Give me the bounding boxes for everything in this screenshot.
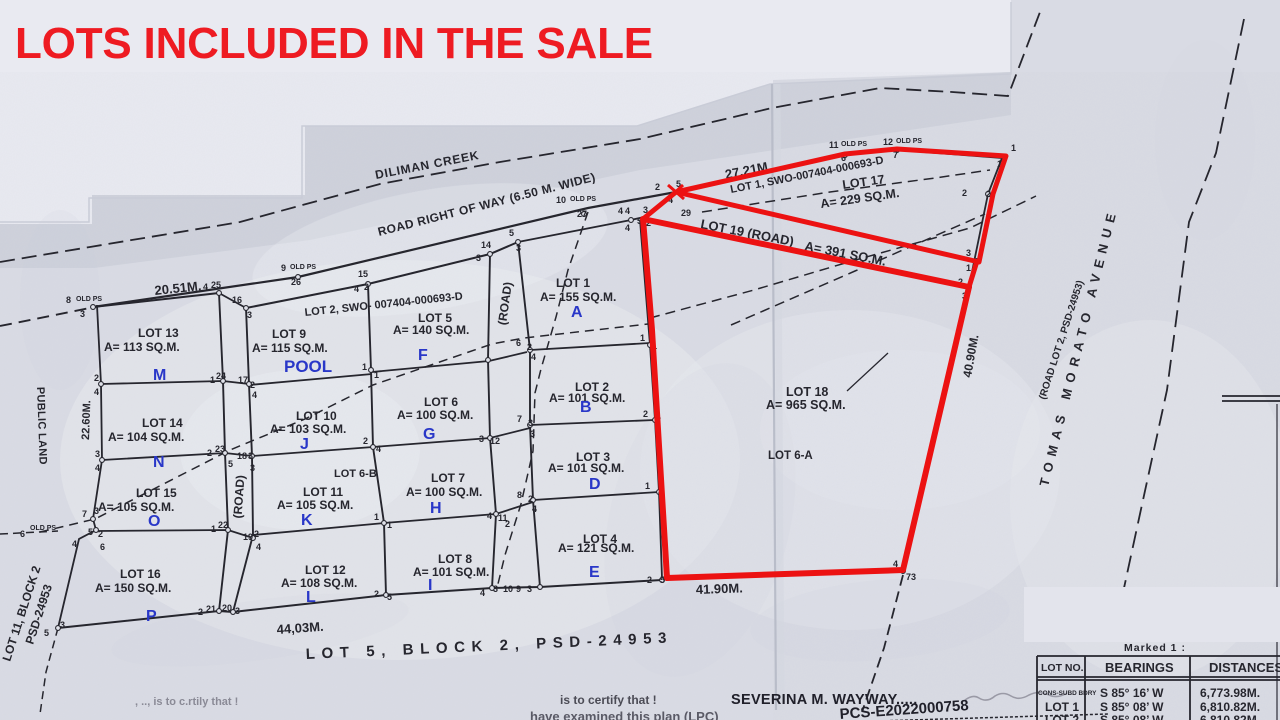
svg-text:22: 22 [218, 520, 228, 530]
svg-text:4: 4 [94, 387, 99, 397]
svg-text:N: N [153, 454, 165, 471]
svg-text:1: 1 [374, 512, 379, 522]
svg-text:OLD PS: OLD PS [290, 264, 316, 271]
svg-text:20: 20 [222, 603, 232, 613]
svg-text:2: 2 [94, 373, 99, 383]
svg-text:LOT 12: LOT 12 [305, 563, 346, 577]
svg-text:A= 103 SQ.M.: A= 103 SQ.M. [270, 422, 346, 436]
svg-text:9: 9 [516, 584, 521, 594]
svg-text:OLD PS: OLD PS [841, 141, 867, 148]
svg-text:2: 2 [962, 188, 967, 198]
svg-text:27: 27 [577, 209, 587, 219]
svg-text:LOT 15: LOT 15 [136, 486, 177, 500]
svg-text:2: 2 [647, 575, 652, 585]
svg-text:3: 3 [248, 451, 253, 461]
svg-text:have examined this plan (LPC: have examined this plan (LPC) [530, 709, 719, 720]
svg-text:1: 1 [210, 375, 215, 385]
svg-text:S 85° 16’ W: S 85° 16’ W [1100, 686, 1164, 700]
svg-text:OLD PS: OLD PS [30, 525, 56, 532]
svg-text:5: 5 [88, 527, 93, 537]
svg-text:L: L [306, 589, 316, 606]
svg-text:2: 2 [643, 409, 648, 419]
svg-text:3: 3 [250, 463, 255, 473]
svg-text:3: 3 [476, 253, 481, 263]
svg-text:M: M [153, 367, 166, 384]
svg-text:K: K [301, 512, 313, 529]
svg-text:H: H [430, 500, 442, 517]
svg-text:4: 4 [376, 444, 381, 454]
svg-text:I: I [428, 577, 432, 594]
svg-text:A= 101 SQ.M.: A= 101 SQ.M. [548, 461, 624, 475]
svg-text:18: 18 [237, 451, 247, 461]
svg-text:B: B [580, 399, 592, 416]
svg-text:LOT 2: LOT 2 [1045, 713, 1079, 720]
svg-text:29: 29 [681, 208, 691, 218]
svg-text:LOT 7: LOT 7 [431, 471, 465, 485]
svg-text:4: 4 [531, 352, 536, 362]
svg-text:A= 113 SQ.M.: A= 113 SQ.M. [104, 340, 180, 354]
svg-text:14: 14 [481, 240, 491, 250]
svg-text:15: 15 [358, 269, 368, 279]
svg-text:LOT 11: LOT 11 [303, 485, 343, 499]
svg-text:5: 5 [509, 228, 514, 238]
svg-text:10: 10 [503, 584, 513, 594]
svg-text:8: 8 [517, 490, 522, 500]
svg-text:E: E [589, 564, 600, 581]
svg-text:, .., is to c.rtily that !: , .., is to c.rtily that ! [135, 696, 238, 708]
svg-text:3: 3 [247, 310, 252, 320]
svg-text:6: 6 [100, 542, 105, 552]
svg-text:4: 4 [487, 511, 492, 521]
svg-text:LOT 16: LOT 16 [120, 567, 161, 581]
svg-text:23: 23 [215, 444, 225, 454]
svg-text:8: 8 [66, 295, 71, 305]
svg-text:3: 3 [493, 584, 498, 594]
svg-text:16: 16 [232, 295, 242, 305]
svg-text:3: 3 [95, 449, 100, 459]
svg-text:A= 108 SQ.M.: A= 108 SQ.M. [281, 576, 357, 590]
svg-text:2: 2 [364, 282, 369, 292]
svg-text:6,810.82M: 6,810.82M [1200, 713, 1257, 720]
svg-text:POOL: POOL [284, 357, 332, 376]
svg-text:A= 115 SQ.M.: A= 115 SQ.M. [252, 341, 328, 355]
svg-text:LOT NO.: LOT NO. [1041, 662, 1084, 674]
svg-text:G: G [423, 426, 435, 443]
svg-text:LOT 6: LOT 6 [424, 395, 458, 409]
svg-text:DISTANCES: DISTANCES [1209, 660, 1280, 675]
svg-text:F: F [418, 347, 428, 364]
svg-text:10: 10 [556, 195, 566, 205]
svg-text:4: 4 [203, 282, 208, 292]
svg-text:1: 1 [640, 333, 645, 343]
svg-text:LOT 18: LOT 18 [786, 385, 828, 399]
svg-text:LOT 13: LOT 13 [138, 326, 179, 340]
svg-text:A= 105 SQ.M.: A= 105 SQ.M. [98, 500, 174, 514]
svg-text:4: 4 [625, 223, 630, 233]
svg-text:5: 5 [387, 592, 392, 602]
svg-text:4: 4 [625, 206, 630, 216]
svg-text:12: 12 [490, 436, 500, 446]
svg-text:LOT 9: LOT 9 [272, 327, 306, 341]
svg-text:A= 100 SQ.M.: A= 100 SQ.M. [397, 408, 473, 422]
svg-text:21: 21 [206, 604, 216, 614]
svg-text:BEARINGS: BEARINGS [1105, 660, 1174, 675]
svg-text:A= 150 SQ.M.: A= 150 SQ.M. [95, 581, 171, 595]
svg-text:1: 1 [387, 520, 392, 530]
svg-text:OLD PS: OLD PS [570, 196, 596, 203]
svg-text:3: 3 [530, 429, 535, 439]
svg-text:A= 155 SQ.M.: A= 155 SQ.M. [540, 290, 616, 304]
svg-text:3: 3 [80, 309, 85, 319]
svg-text:LOT 1: LOT 1 [1045, 700, 1079, 714]
svg-text:4: 4 [72, 539, 77, 549]
svg-text:4: 4 [256, 542, 261, 552]
svg-text:4: 4 [532, 504, 537, 514]
svg-text:3: 3 [528, 418, 533, 428]
svg-text:3: 3 [516, 243, 521, 253]
svg-text:1: 1 [645, 481, 650, 491]
svg-text:2: 2 [363, 436, 368, 446]
svg-text:1: 1 [211, 524, 216, 534]
svg-text:12: 12 [883, 137, 893, 147]
svg-text:4: 4 [95, 463, 100, 473]
svg-text:is to certify that !: is to certify that ! [560, 693, 657, 707]
svg-text:LOT 6-A: LOT 6-A [768, 450, 813, 462]
svg-text:41.90M.: 41.90M. [696, 580, 743, 597]
svg-text:Marked 1 :: Marked 1 : [1124, 642, 1186, 654]
svg-text:5: 5 [44, 628, 49, 638]
svg-text:17: 17 [238, 375, 248, 385]
svg-text:A= 105 SQ.M.: A= 105 SQ.M. [277, 498, 353, 512]
svg-text:A= 140 SQ.M.: A= 140 SQ.M. [393, 323, 469, 337]
svg-text:A= 104 SQ.M.: A= 104 SQ.M. [108, 430, 184, 444]
svg-text:3: 3 [527, 584, 532, 594]
svg-text:7: 7 [517, 414, 522, 424]
svg-text:2: 2 [655, 182, 660, 192]
svg-text:S 85° 08’ W: S 85° 08’ W [1100, 700, 1164, 714]
svg-text:22.60M.: 22.60M. [80, 400, 93, 440]
svg-text:6: 6 [516, 338, 521, 348]
svg-text:A= 101 SQ.M.: A= 101 SQ.M. [413, 565, 489, 579]
svg-text:OLD PS: OLD PS [896, 138, 922, 145]
svg-text:OLD PS: OLD PS [76, 296, 102, 303]
svg-text:S 85° 08’ W: S 85° 08’ W [1100, 713, 1164, 720]
svg-text:D: D [589, 476, 601, 493]
svg-text:11: 11 [829, 140, 839, 150]
svg-text:1: 1 [1011, 143, 1016, 153]
svg-text:26: 26 [291, 277, 301, 287]
svg-text:O: O [148, 513, 160, 530]
svg-text:2: 2 [527, 342, 532, 352]
svg-text:3: 3 [60, 620, 65, 630]
svg-text:6: 6 [20, 529, 25, 539]
svg-text:2: 2 [374, 589, 379, 599]
svg-text:2: 2 [250, 380, 255, 390]
svg-text:5: 5 [228, 459, 233, 469]
svg-text:A= 100 SQ.M.: A= 100 SQ.M. [406, 485, 482, 499]
svg-text:6,810.82M.: 6,810.82M. [1200, 700, 1260, 714]
svg-text:2: 2 [505, 519, 510, 529]
svg-text:CONS-SUBD BDRY: CONS-SUBD BDRY [1038, 690, 1097, 697]
svg-text:1: 1 [966, 263, 971, 273]
svg-text:LOT 14: LOT 14 [142, 416, 183, 430]
svg-text:2: 2 [198, 607, 203, 617]
svg-text:4: 4 [354, 284, 359, 294]
svg-text:2: 2 [528, 494, 533, 504]
svg-text:9: 9 [281, 263, 286, 273]
svg-text:24: 24 [216, 371, 226, 381]
svg-text:2: 2 [98, 529, 103, 539]
svg-text:3: 3 [235, 606, 240, 616]
svg-text:A= 121 SQ.M.: A= 121 SQ.M. [558, 541, 634, 555]
svg-text:LOT 6-B: LOT 6-B [334, 468, 377, 480]
svg-text:2: 2 [254, 529, 259, 539]
svg-text:3: 3 [94, 506, 99, 516]
svg-text:A: A [571, 304, 583, 321]
svg-text:25: 25 [211, 280, 221, 290]
svg-text:2: 2 [207, 448, 212, 458]
svg-text:1: 1 [362, 362, 367, 372]
svg-text:3: 3 [479, 434, 484, 444]
svg-text:P: P [146, 608, 157, 625]
svg-text:A= 965 SQ.M.: A= 965 SQ.M. [766, 398, 846, 412]
svg-text:4: 4 [480, 588, 485, 598]
svg-text:3: 3 [966, 248, 971, 258]
svg-text:LOTS INCLUDED IN THE SALE: LOTS INCLUDED IN THE SALE [15, 19, 653, 68]
svg-text:4: 4 [618, 206, 623, 216]
svg-text:6,773.98M.: 6,773.98M. [1200, 686, 1260, 700]
svg-text:4: 4 [252, 390, 257, 400]
svg-text:LOT 8: LOT 8 [438, 552, 472, 566]
svg-text:73: 73 [906, 572, 916, 582]
svg-text:19: 19 [243, 532, 253, 542]
svg-text:7: 7 [82, 509, 87, 519]
svg-text:J: J [300, 436, 309, 453]
svg-text:1: 1 [374, 370, 379, 380]
svg-text:LOT 10: LOT 10 [296, 409, 337, 423]
svg-text:LOT 1: LOT 1 [556, 276, 590, 290]
